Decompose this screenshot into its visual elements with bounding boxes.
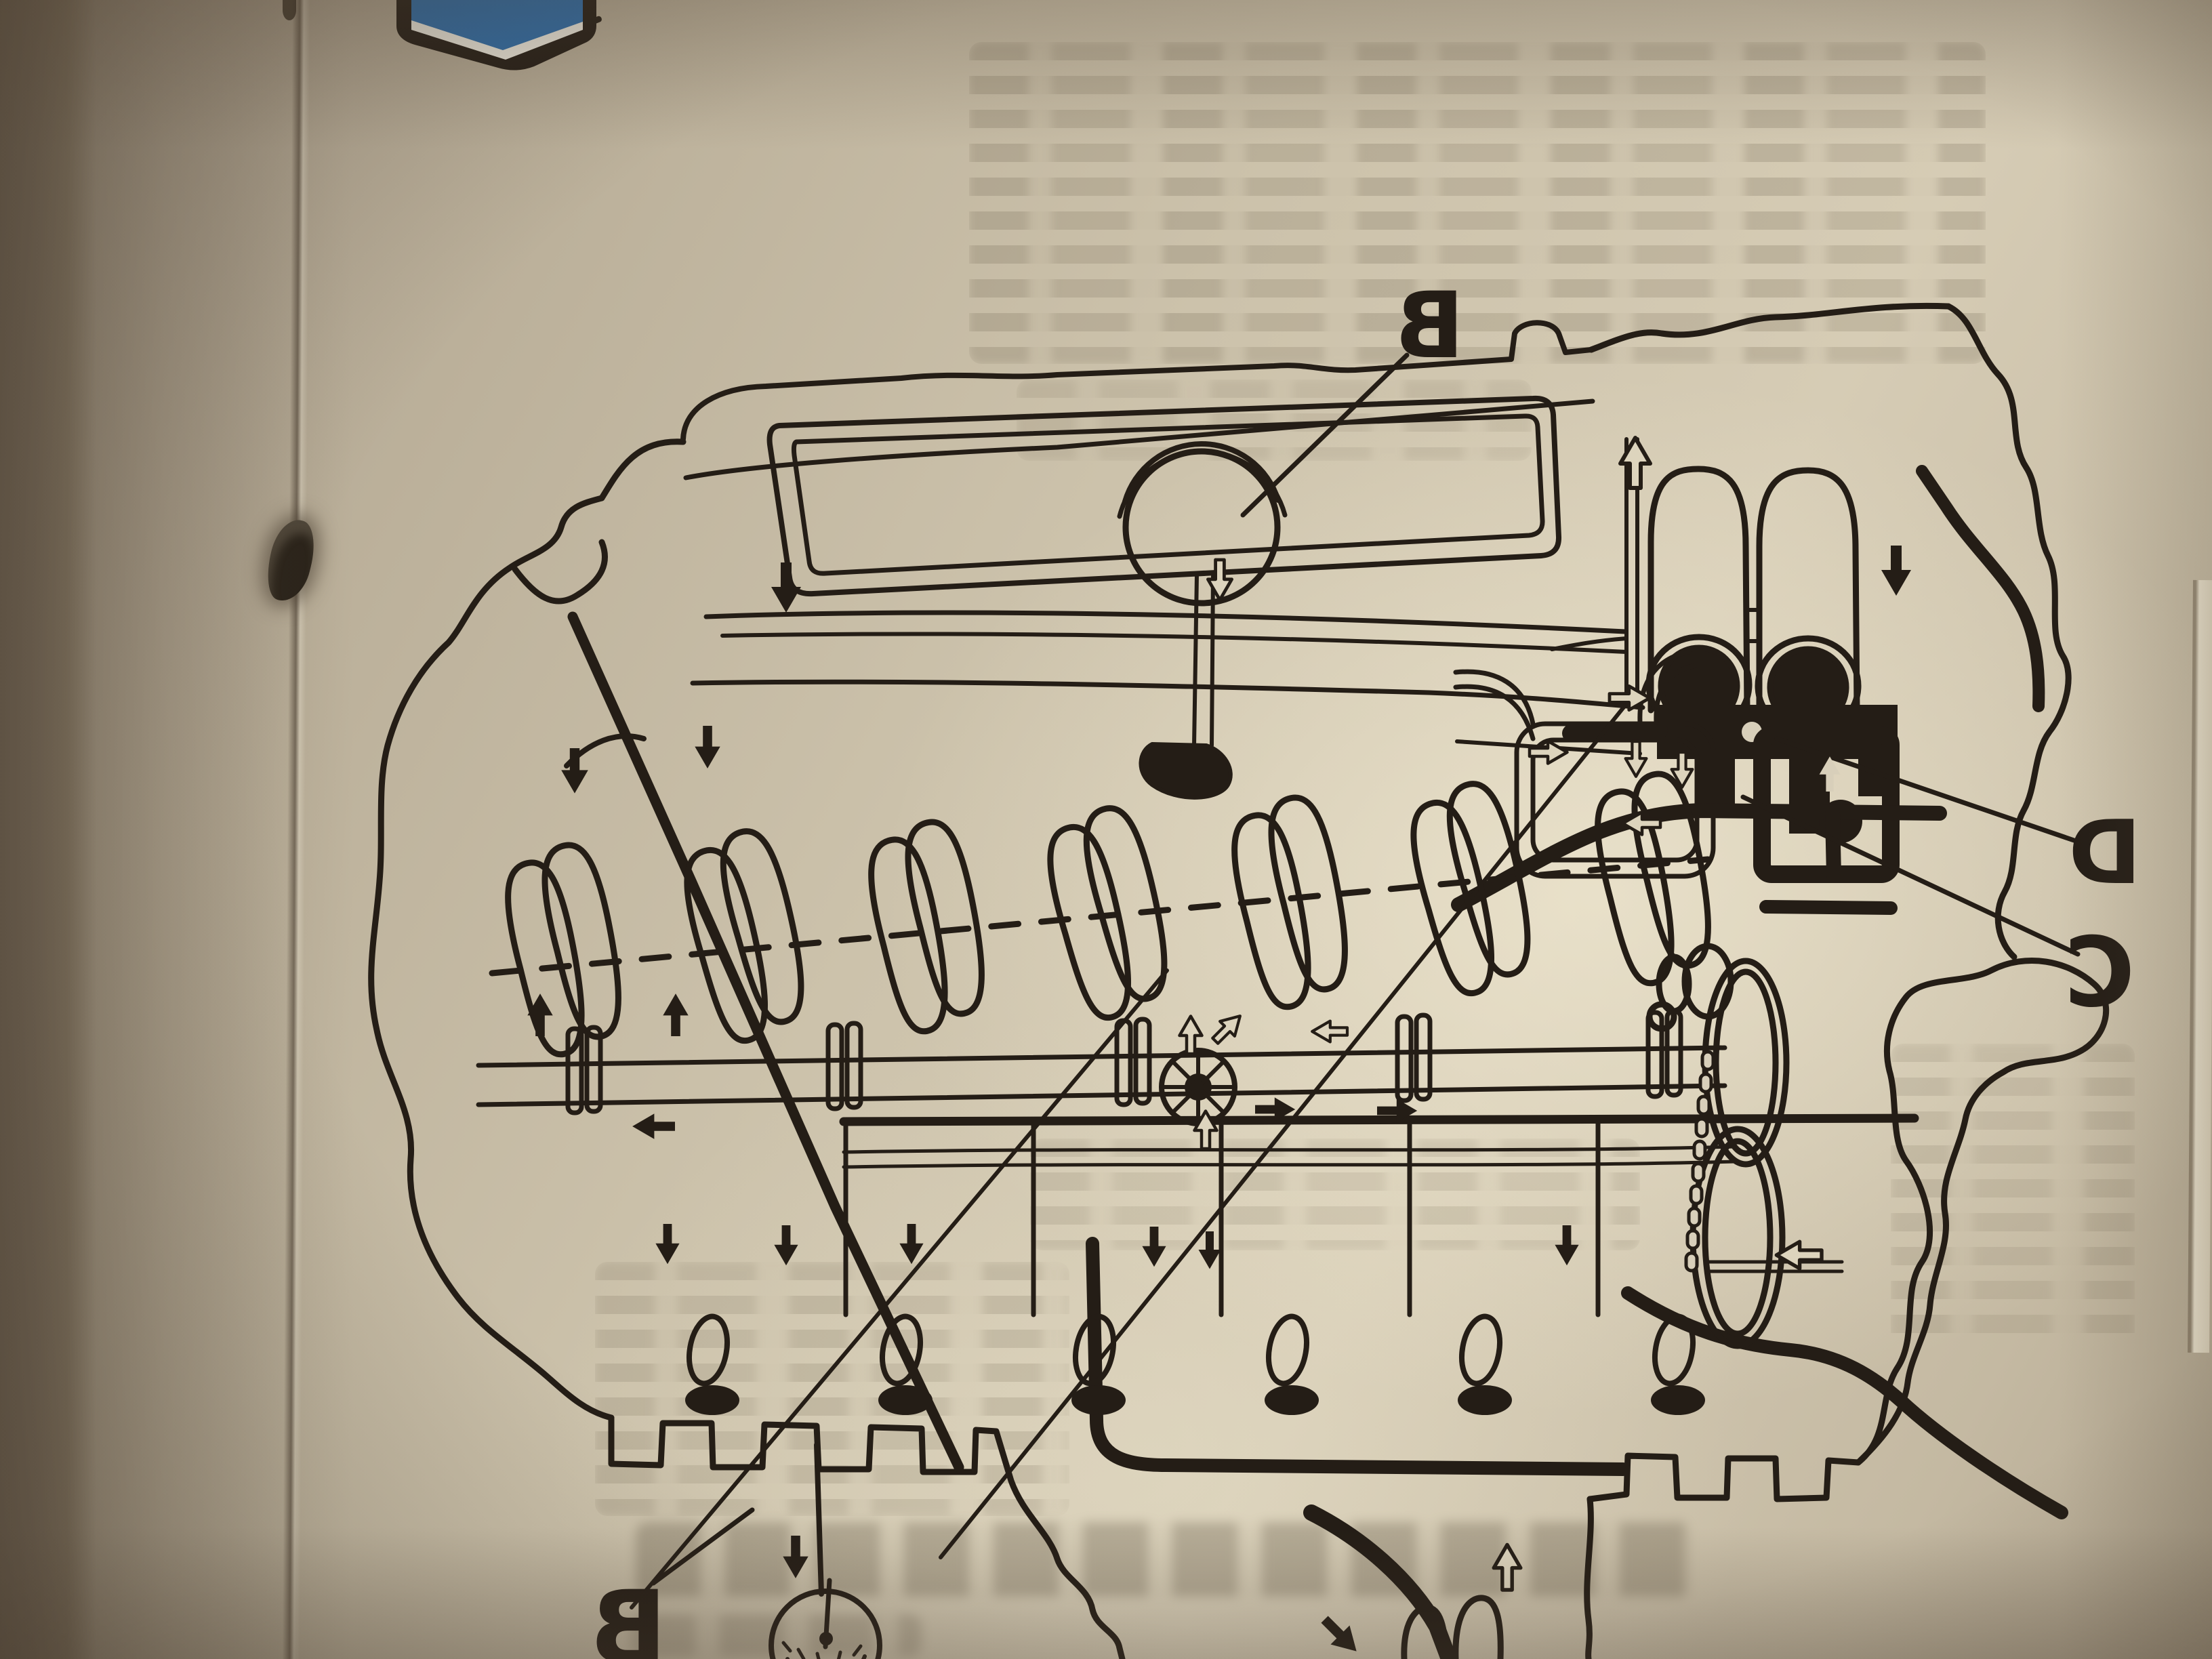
flywheel-pulleys <box>1650 946 1842 1346</box>
oil-pump-drive-gear <box>1162 1050 1235 1124</box>
engine-lubrication-diagram <box>0 0 2212 1659</box>
callout-label-b-bottom: B <box>590 1583 667 1659</box>
callout-label-b-top: B <box>1395 285 1465 367</box>
valve-cover <box>683 323 1643 754</box>
callout-label-d-right: D <box>2068 813 2142 893</box>
photographed-book-page: B D C B <box>0 0 2212 1659</box>
engine-block-silhouette <box>371 306 2106 1659</box>
twin-oil-filters <box>1552 439 2039 834</box>
callout-label-c-right: C <box>2064 930 2135 1017</box>
oil-pickup-strainer <box>653 1445 880 1659</box>
outline-flow-arrows <box>1180 438 1822 1590</box>
leader-line-b-top <box>1243 355 1407 515</box>
camshaft <box>478 1011 1725 1124</box>
